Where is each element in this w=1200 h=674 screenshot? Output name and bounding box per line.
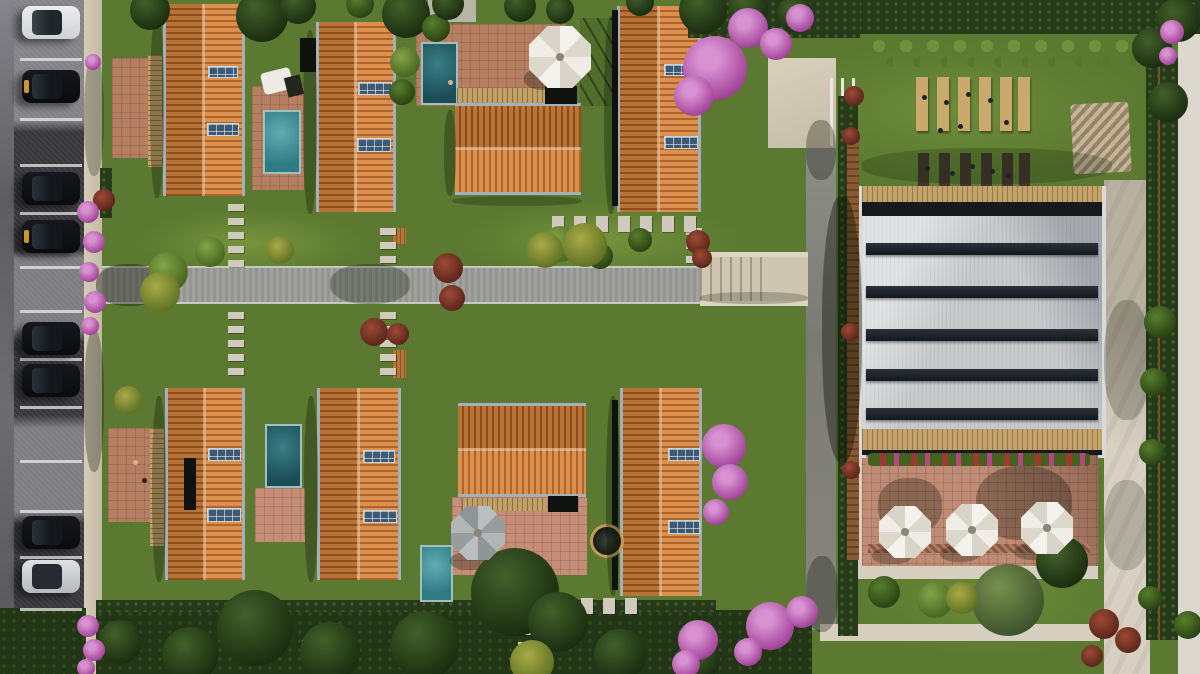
tree (389, 79, 415, 105)
pool (265, 424, 302, 488)
parking-stall-line (20, 266, 82, 269)
stepping-stone (380, 354, 396, 361)
person (1006, 173, 1011, 178)
skylight-band (866, 243, 1098, 255)
person (922, 95, 927, 100)
pool (421, 42, 458, 105)
flowering-bush (114, 386, 142, 414)
parking-stall-line (20, 58, 82, 61)
solar-panel (363, 450, 395, 463)
bougainvillea (703, 499, 729, 525)
headlight (24, 230, 29, 243)
stepping-stone (380, 312, 396, 319)
bougainvillea (83, 639, 105, 661)
stepping-stone (380, 228, 396, 235)
east-hedge-outer (1160, 58, 1178, 640)
stepping-stone (228, 368, 244, 375)
parking-stall-line (20, 406, 82, 409)
parking-stall-line (20, 212, 82, 215)
person (925, 166, 930, 171)
person (958, 124, 963, 129)
bougainvillea (760, 28, 792, 60)
rust-bush (1081, 645, 1103, 667)
stepping-stone (380, 256, 396, 263)
picnic-table (958, 77, 970, 131)
person (966, 92, 971, 97)
bougainvillea (77, 659, 95, 674)
rust-bush (439, 285, 465, 311)
solar-panel (363, 510, 397, 523)
tree (390, 47, 420, 77)
stepping-stone (228, 204, 244, 211)
shadow (604, 16, 618, 214)
tree (1138, 586, 1162, 610)
shadow (1104, 480, 1150, 570)
pool (263, 110, 301, 174)
person (970, 164, 975, 169)
headlight (24, 80, 29, 93)
flowering-bush (946, 582, 978, 614)
solar-panel (207, 123, 239, 136)
shadow (452, 196, 582, 206)
bougainvillea (712, 464, 748, 500)
tree (1139, 439, 1165, 465)
garden-path (820, 624, 1100, 641)
bougainvillea (1159, 47, 1177, 65)
bougainvillea (674, 76, 714, 116)
bougainvillea (786, 4, 814, 32)
tree (1148, 82, 1188, 122)
parking-stall-line (20, 510, 82, 513)
stepping-stone (228, 218, 244, 225)
tree (217, 590, 293, 666)
shadow (150, 14, 164, 198)
tree (594, 629, 646, 674)
patio-tiles (255, 488, 305, 542)
bougainvillea (672, 650, 700, 674)
parked-car (22, 364, 80, 397)
shadow (303, 30, 317, 214)
rust-bush (844, 86, 864, 106)
stepping-stone (625, 598, 637, 614)
stepping-stone (228, 260, 244, 267)
shadow (444, 110, 456, 196)
shadow (606, 396, 620, 596)
skylight-band (866, 369, 1098, 381)
parking-stall-line (20, 118, 82, 121)
corner-garden (0, 608, 86, 674)
tree (300, 622, 360, 674)
shadow (1104, 300, 1150, 420)
tree (98, 620, 142, 664)
scene (0, 0, 1200, 674)
skylight-band (866, 408, 1098, 420)
solar-panel (668, 448, 700, 461)
clubhouse-deck-top (862, 186, 1102, 202)
tree (162, 627, 218, 674)
solar-panel (358, 82, 392, 95)
tree (504, 0, 536, 22)
shadow (700, 292, 808, 304)
parking-stall-line (20, 310, 82, 313)
parking-stall-line (20, 164, 82, 167)
solar-panel (357, 138, 391, 152)
flowering-bush (266, 236, 294, 264)
parked-car (22, 560, 80, 593)
picnic-table (979, 77, 991, 131)
stepping-stone (228, 246, 244, 253)
tree (346, 0, 374, 18)
tree (972, 564, 1044, 636)
parked-car (22, 6, 80, 39)
house-roof (455, 103, 581, 195)
clubhouse-eave (862, 202, 1102, 216)
tree (1174, 611, 1200, 639)
flowering-bush (140, 272, 180, 312)
stepping-stone (380, 368, 396, 375)
skylight-band (866, 329, 1098, 341)
person (990, 169, 995, 174)
dark-structure (548, 496, 578, 512)
bougainvillea (77, 615, 99, 637)
rust-bush (842, 127, 860, 145)
banana-plant-row (866, 34, 1144, 72)
bougainvillea (702, 424, 746, 468)
person (133, 460, 138, 465)
stepping-stone (228, 326, 244, 333)
house-roof (165, 388, 245, 580)
clubhouse-deck-bottom (862, 429, 1102, 452)
stepping-stone (380, 242, 396, 249)
solar-panel (668, 520, 700, 534)
person (988, 98, 993, 103)
shadow (330, 264, 410, 304)
house-roof (316, 22, 396, 212)
solar-panel (208, 66, 238, 78)
person (938, 128, 943, 133)
tree (546, 0, 574, 24)
bougainvillea (1160, 20, 1184, 44)
solar-panel (207, 508, 241, 522)
tree (195, 237, 225, 267)
stepping-stone (228, 232, 244, 239)
solar-panel (208, 448, 241, 461)
stepping-stone (228, 340, 244, 347)
rust-bush (841, 323, 859, 341)
person (950, 171, 955, 176)
tree (628, 228, 652, 252)
shadow (862, 148, 1112, 184)
bougainvillea (85, 54, 101, 70)
terrace-flower-boxes (868, 453, 1090, 466)
parked-car (22, 516, 80, 549)
shadow (806, 120, 836, 180)
bougainvillea (734, 638, 762, 666)
solar-panel (664, 136, 698, 149)
picnic-table (1018, 77, 1030, 131)
pergola-slats (457, 88, 545, 103)
dark-structure (184, 458, 196, 510)
rust-bush (1089, 609, 1119, 639)
house-roof (163, 4, 245, 196)
person (142, 478, 147, 483)
shadow (304, 396, 318, 582)
flowering-bush (563, 223, 607, 267)
parked-car (22, 172, 80, 205)
rust-bush (360, 318, 388, 346)
bougainvillea (81, 317, 99, 335)
house-roof (620, 388, 702, 596)
bougainvillea (83, 231, 105, 253)
rust-bush (387, 323, 409, 345)
stepping-stone (618, 216, 630, 232)
person (448, 80, 453, 85)
tree (1144, 306, 1176, 338)
stepping-stone (603, 598, 615, 614)
parked-car (22, 70, 80, 103)
shadow (84, 56, 104, 176)
shadow (84, 330, 104, 472)
parking-stall-line (20, 608, 82, 611)
house-roof (458, 403, 586, 497)
south-hedge-line (96, 600, 716, 612)
tree (391, 611, 459, 674)
stepping-stone (662, 216, 674, 232)
parked-car (22, 220, 80, 253)
parking-stall-line (20, 460, 82, 463)
flowering-bush (527, 232, 563, 268)
skylight-band (866, 286, 1098, 298)
tree (868, 576, 900, 608)
pool (420, 545, 453, 602)
rust-bush (433, 253, 463, 283)
bougainvillea (786, 596, 818, 628)
parked-car (22, 322, 80, 355)
tree (1140, 368, 1168, 396)
parking-stall-line (20, 556, 82, 559)
bougainvillea (79, 262, 99, 282)
shadow (152, 396, 166, 582)
bougainvillea (77, 201, 99, 223)
house-roof (317, 388, 401, 580)
patio-umbrella (1021, 502, 1073, 554)
stepping-stone (228, 354, 244, 361)
rust-bush (1115, 627, 1141, 653)
rust-bush (842, 461, 860, 479)
person (1004, 120, 1009, 125)
picnic-table (916, 77, 928, 131)
rust-bush (692, 248, 712, 268)
parking-stall-line (20, 358, 82, 361)
person (944, 100, 949, 105)
stepping-stone (228, 312, 244, 319)
lounge-mat (284, 74, 304, 97)
bougainvillea (84, 291, 106, 313)
